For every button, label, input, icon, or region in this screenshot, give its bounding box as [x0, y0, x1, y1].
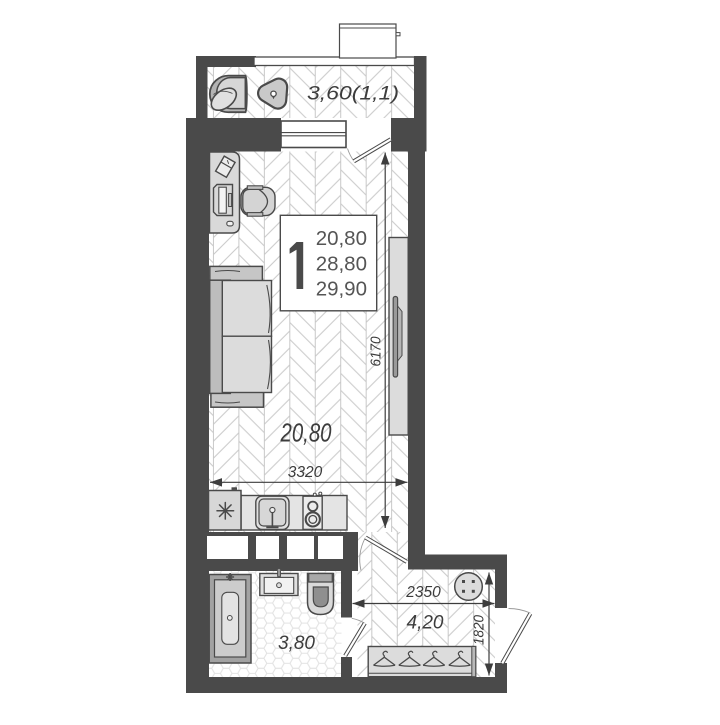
svg-text:28,80: 28,80 [316, 253, 367, 276]
svg-text:6170: 6170 [369, 337, 385, 367]
svg-text:20,80: 20,80 [280, 420, 332, 448]
svg-text:3,60(1,1): 3,60(1,1) [307, 83, 399, 105]
svg-text:3,80: 3,80 [278, 633, 315, 654]
svg-text:20,80: 20,80 [316, 227, 367, 250]
svg-text:2350: 2350 [405, 584, 441, 601]
svg-text:1820: 1820 [472, 615, 488, 645]
svg-text:3320: 3320 [288, 464, 323, 481]
svg-text:4,20: 4,20 [407, 613, 444, 634]
svg-text:29,90: 29,90 [316, 278, 367, 301]
